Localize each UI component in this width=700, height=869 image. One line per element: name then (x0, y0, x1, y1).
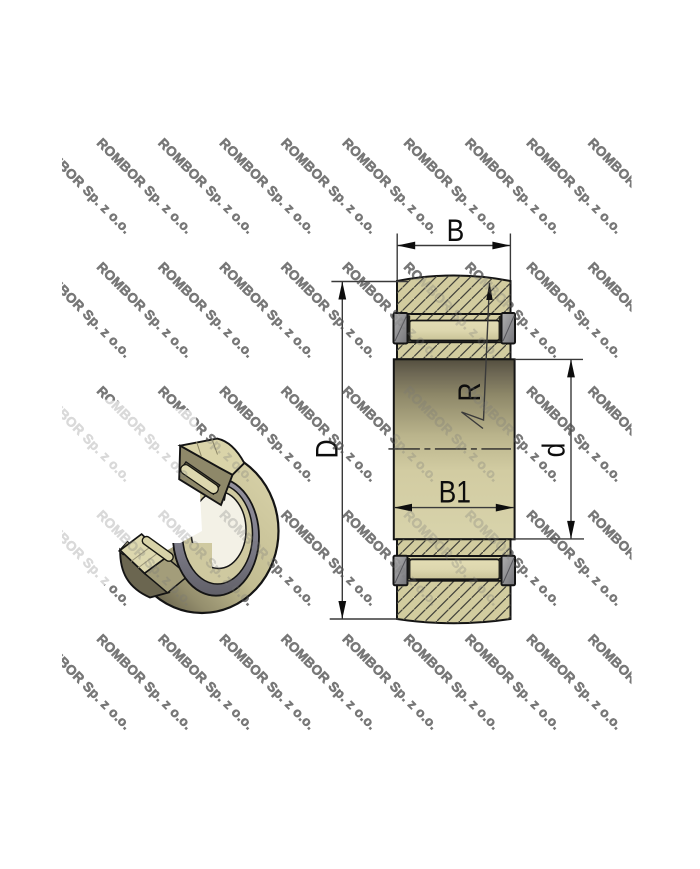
svg-text:B1: B1 (439, 475, 471, 510)
svg-text:B: B (447, 214, 465, 249)
